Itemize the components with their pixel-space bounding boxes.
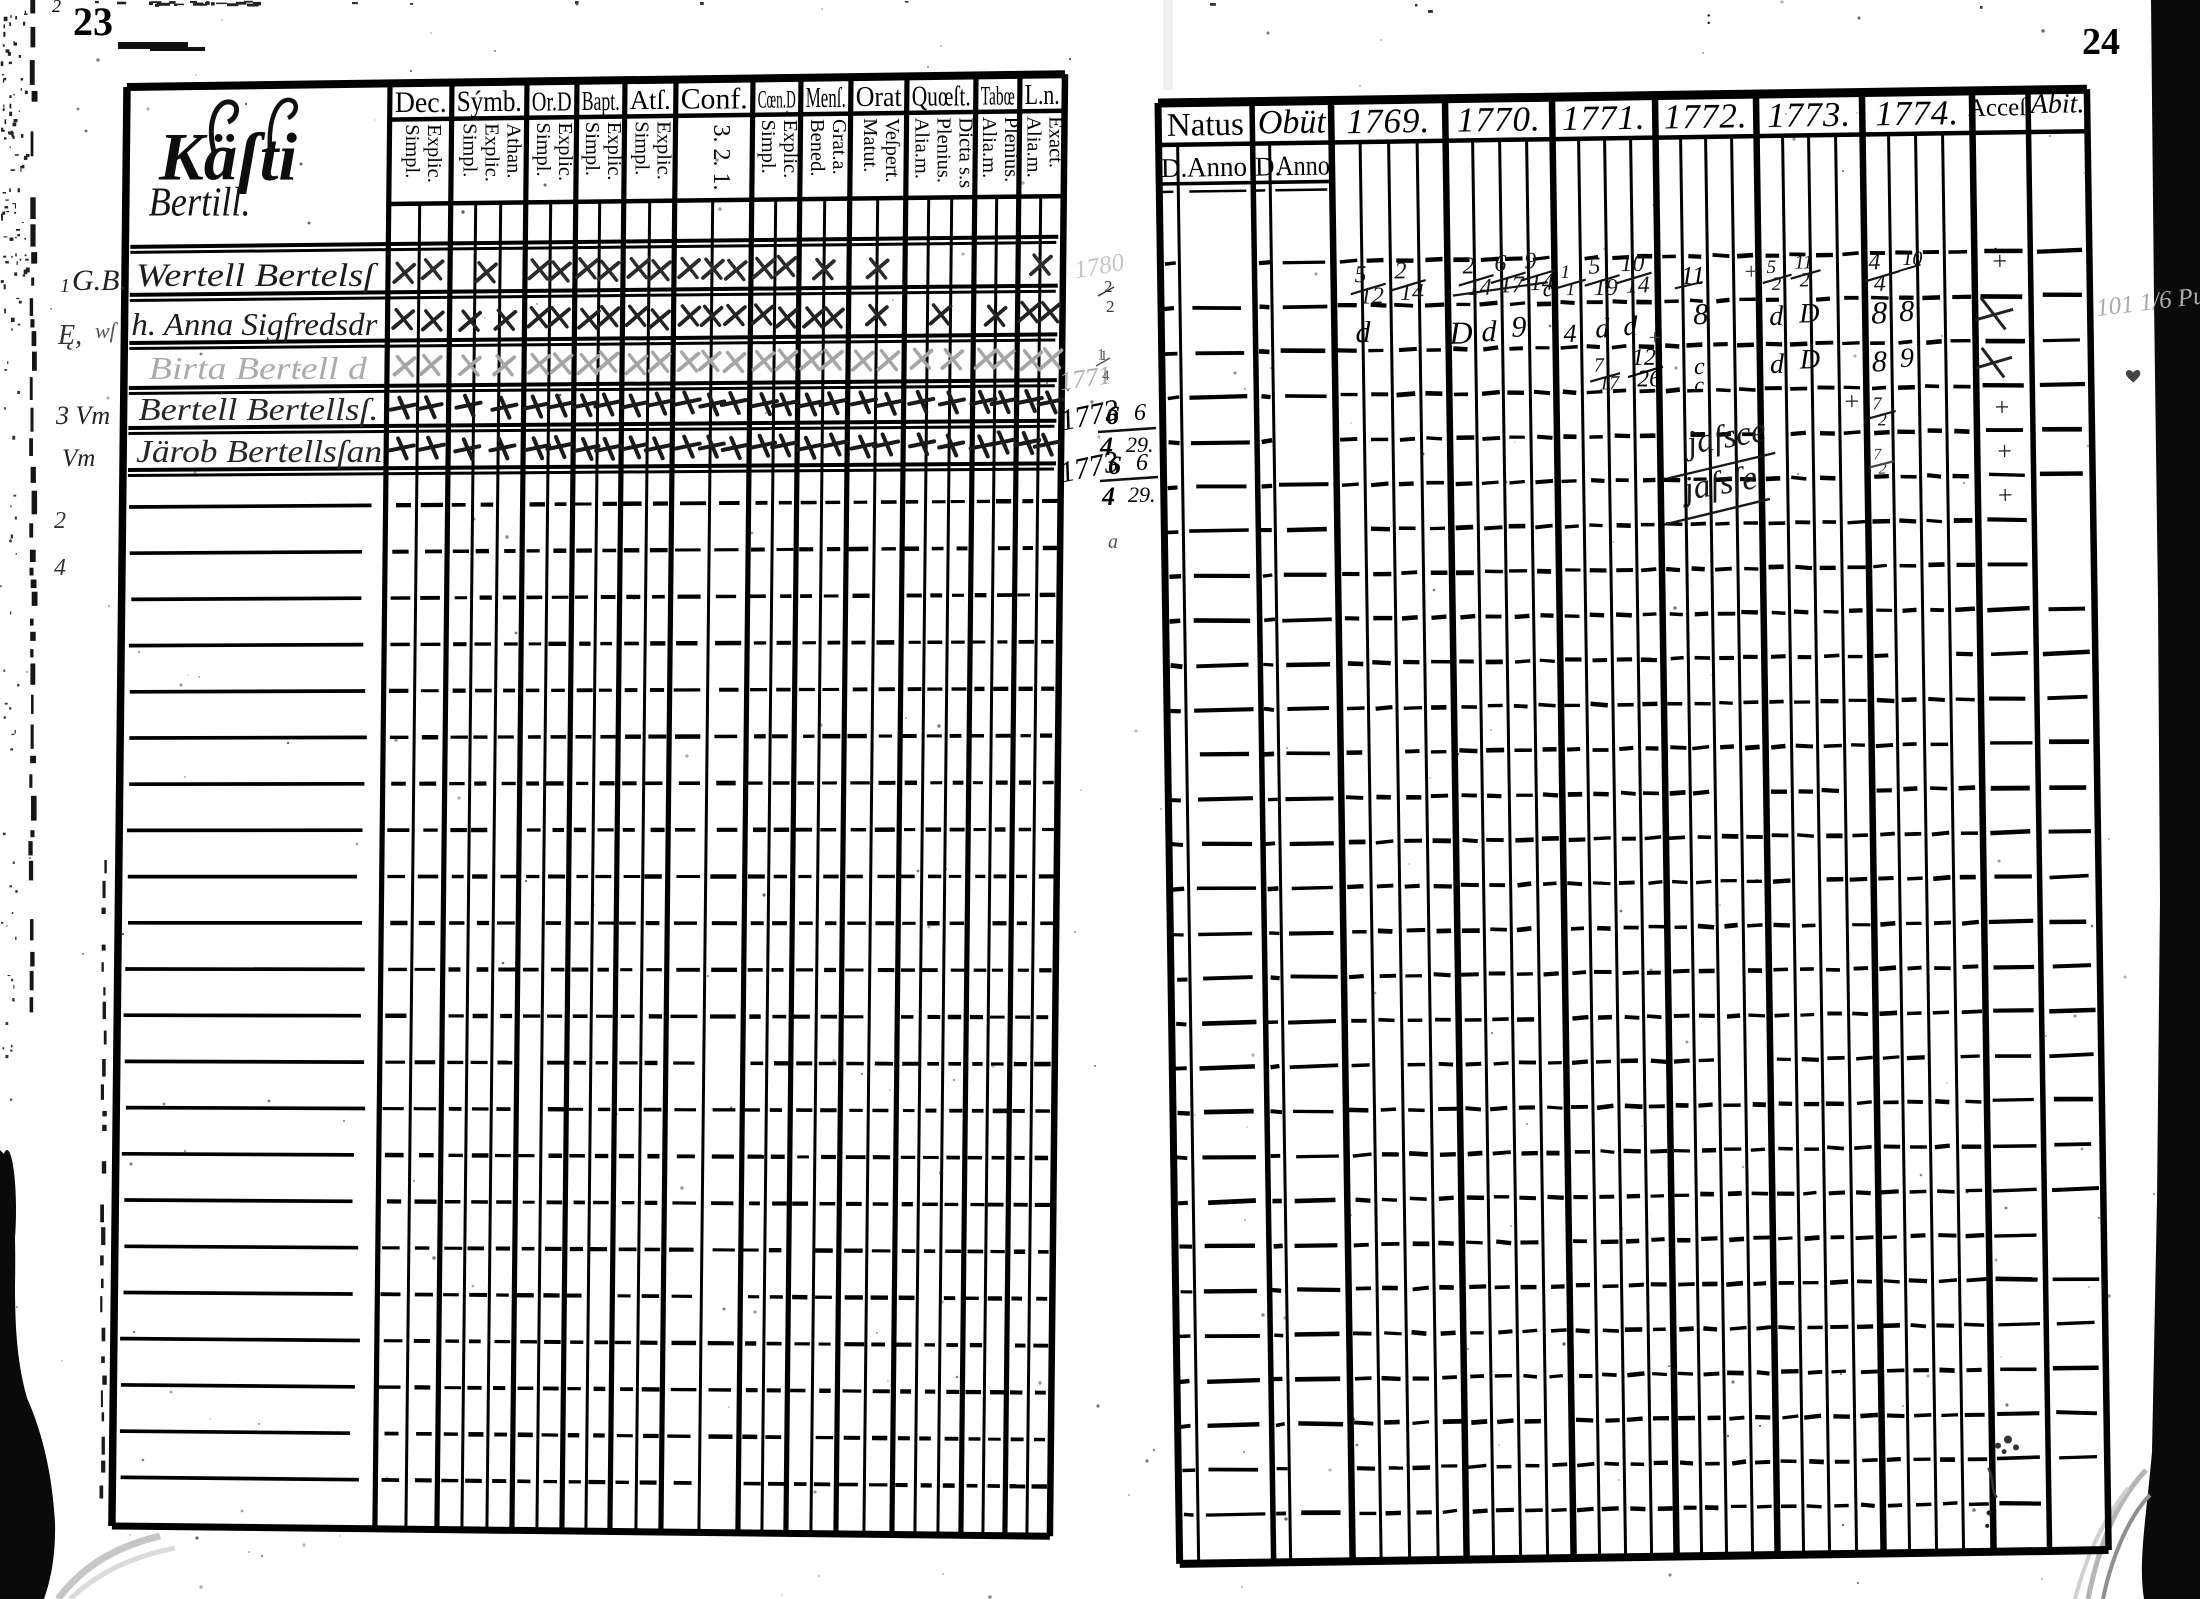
svg-text:D: D bbox=[1798, 298, 1820, 329]
svg-text:Abit.: Abit. bbox=[2029, 88, 2085, 120]
svg-text:+: + bbox=[1994, 392, 2009, 421]
svg-text:d: d bbox=[1770, 349, 1785, 380]
svg-text:8: 8 bbox=[1871, 294, 1888, 330]
svg-text:d: d bbox=[1355, 316, 1371, 349]
svg-text:Bertill.: Bertill. bbox=[149, 179, 251, 225]
svg-text:4: 4 bbox=[54, 555, 66, 581]
svg-text:c: c bbox=[1694, 372, 1704, 397]
svg-text:2: 2 bbox=[54, 508, 66, 534]
svg-text:1: 1 bbox=[60, 275, 70, 297]
svg-text:2: 2 bbox=[1104, 277, 1113, 296]
svg-text:Dicta s.sPlenius.Alia.m.: Dicta s.sPlenius.Alia.m. bbox=[911, 118, 977, 189]
svg-text:Menſ.: Menſ. bbox=[806, 83, 846, 114]
svg-text:Cœn.D: Cœn.D bbox=[758, 87, 796, 114]
svg-text:L.n.: L.n. bbox=[1025, 80, 1060, 111]
svg-text:Anno: Anno bbox=[1276, 150, 1330, 182]
svg-text:D: D bbox=[1799, 344, 1821, 375]
svg-text:24: 24 bbox=[2082, 21, 2120, 63]
svg-text::: : bbox=[1706, 7, 1712, 29]
svg-text:Järob Bertellsſan: Järob Bertellsſan bbox=[136, 433, 382, 469]
svg-text:4: 4 bbox=[1102, 368, 1110, 384]
svg-text:1771.: 1771. bbox=[1562, 98, 1646, 138]
svg-text:1773.: 1773. bbox=[1767, 95, 1851, 135]
svg-text:Obüt: Obüt bbox=[1258, 103, 1328, 141]
svg-text:3 Vm: 3 Vm bbox=[55, 401, 110, 430]
svg-text:Athan.Explic.Simpl.: Athan.Explic.Simpl. bbox=[459, 123, 525, 182]
svg-text:9: 9 bbox=[1511, 311, 1526, 344]
svg-text:2: 2 bbox=[1106, 297, 1115, 316]
svg-text:D: D bbox=[1448, 314, 1473, 350]
svg-text:1774.: 1774. bbox=[1875, 93, 1959, 133]
svg-text:Acceſ.: Acceſ. bbox=[1968, 94, 2033, 122]
svg-text:Natus: Natus bbox=[1167, 107, 1245, 144]
svg-text:Explic.Simpl.: Explic.Simpl. bbox=[581, 122, 625, 181]
svg-text:23: 23 bbox=[73, 0, 113, 44]
svg-text:Birta Bertell d: Birta Bertell d bbox=[149, 350, 368, 386]
svg-text:Atſ.: Atſ. bbox=[630, 85, 671, 115]
svg-text:1769.: 1769. bbox=[1346, 101, 1430, 141]
svg-text:+: + bbox=[1844, 387, 1859, 416]
svg-text:2: 2 bbox=[1878, 409, 1887, 429]
svg-text:1772.: 1772. bbox=[1664, 96, 1748, 136]
svg-text:+: + bbox=[1998, 480, 2013, 509]
svg-text:8: 8 bbox=[1899, 295, 1914, 328]
svg-text:d: d bbox=[1623, 311, 1638, 342]
svg-text:Sýmb.: Sýmb. bbox=[457, 85, 522, 118]
svg-text:1770.: 1770. bbox=[1457, 99, 1541, 139]
svg-text:Plenius.Alia.m.: Plenius.Alia.m. bbox=[978, 117, 1022, 183]
svg-text:D.: D. bbox=[1161, 153, 1188, 183]
svg-text:Bertell Bertellsſ.: Bertell Bertellsſ. bbox=[139, 391, 379, 427]
svg-text:Tabœ: Tabœ bbox=[981, 82, 1015, 111]
svg-text:c: c bbox=[1543, 276, 1553, 301]
svg-text:a: a bbox=[1108, 531, 1118, 553]
svg-text:Ę,: Ę, bbox=[57, 320, 82, 351]
svg-text:8: 8 bbox=[1872, 345, 1887, 378]
svg-text:29.: 29. bbox=[1128, 482, 1156, 507]
svg-text:Explic.Simpl.: Explic.Simpl. bbox=[631, 121, 675, 180]
svg-text:Anno: Anno bbox=[1187, 152, 1247, 184]
svg-text:Explic.Simpl.: Explic.Simpl. bbox=[401, 124, 445, 183]
svg-text:2: 2 bbox=[52, 0, 61, 16]
svg-text:4: 4 bbox=[1101, 482, 1115, 511]
svg-text:h. Anna Sigfredsdr: h. Anna Sigfredsdr bbox=[131, 306, 378, 342]
svg-text:Explic.Simpl.: Explic.Simpl. bbox=[532, 123, 576, 182]
svg-text:Vm: Vm bbox=[62, 445, 95, 472]
svg-text:Wertell Bertelsſ: Wertell Bertelsſ bbox=[136, 258, 378, 294]
svg-text:·: · bbox=[1992, 239, 1999, 261]
svg-text:+: + bbox=[1997, 436, 2012, 465]
svg-text:wſ: wſ bbox=[95, 318, 119, 343]
svg-text:6: 6 bbox=[1106, 401, 1119, 430]
svg-text:d: d bbox=[1595, 313, 1610, 344]
svg-text:6: 6 bbox=[1108, 451, 1121, 480]
svg-text:Bapt.: Bapt. bbox=[582, 86, 620, 116]
svg-text:Grat.a.Bened.: Grat.a.Bened. bbox=[806, 119, 850, 177]
svg-text:Conf.: Conf. bbox=[681, 82, 748, 115]
svg-text:d: d bbox=[1481, 315, 1497, 348]
svg-text:+: + bbox=[1744, 259, 1758, 285]
svg-text:G.B.: G.B. bbox=[72, 264, 127, 297]
svg-text:Dec.: Dec. bbox=[395, 86, 447, 119]
svg-text:4: 4 bbox=[1563, 319, 1576, 348]
svg-text:3. 2. 1.: 3. 2. 1. bbox=[708, 125, 734, 191]
svg-text:Orat: Orat bbox=[856, 81, 902, 113]
svg-text:6: 6 bbox=[1136, 450, 1148, 476]
svg-text:Quœſt.: Quœſt. bbox=[912, 81, 971, 112]
svg-text:9: 9 bbox=[1900, 343, 1914, 374]
svg-text:d: d bbox=[1769, 301, 1784, 332]
svg-text:6: 6 bbox=[1134, 400, 1146, 426]
svg-text:Explic.Simpl.: Explic.Simpl. bbox=[757, 120, 801, 179]
svg-text:8: 8 bbox=[1693, 298, 1708, 331]
svg-text:Or.D: Or.D bbox=[532, 86, 572, 116]
